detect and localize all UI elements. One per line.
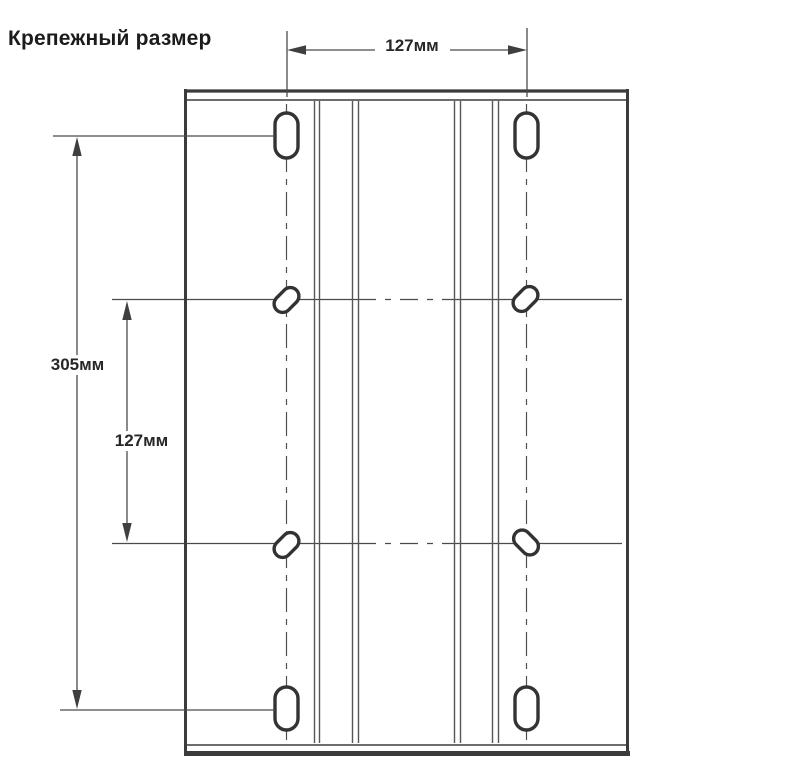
dimension-label-overall-height: 305мм <box>45 355 110 375</box>
bracket-drawing <box>0 0 800 768</box>
mounting-slot-top-left <box>275 113 298 158</box>
plate-outline <box>184 89 630 756</box>
mounting-slot-mid2-right <box>510 527 542 559</box>
dimension-label-middle-spacing: 127мм <box>109 431 174 451</box>
arrowhead-down <box>72 690 81 709</box>
mounting-slot-mid2-left <box>271 529 303 561</box>
mounting-slot-mid1-left <box>271 284 303 316</box>
center-lines-vertical <box>287 104 527 740</box>
arrowhead-right <box>508 45 527 55</box>
mounting-slot-bottom-left <box>275 687 298 730</box>
mounting-slot-bottom-right <box>515 687 538 730</box>
dimension-label-top-width: 127мм <box>377 36 447 56</box>
mounting-slot-top-right <box>515 113 538 158</box>
arrowhead-up <box>122 301 131 320</box>
arrowhead-up <box>72 137 81 156</box>
dimension-overall-height <box>53 136 275 710</box>
arrowhead-left <box>287 45 306 55</box>
mounting-dimensions-diagram: Крепежный размер <box>0 0 800 768</box>
arrowhead-down <box>122 523 131 542</box>
mounting-slots <box>271 113 542 730</box>
dimension-middle-spacing <box>122 301 131 542</box>
rib-lines <box>315 101 499 743</box>
mounting-slot-mid1-right <box>510 283 542 315</box>
